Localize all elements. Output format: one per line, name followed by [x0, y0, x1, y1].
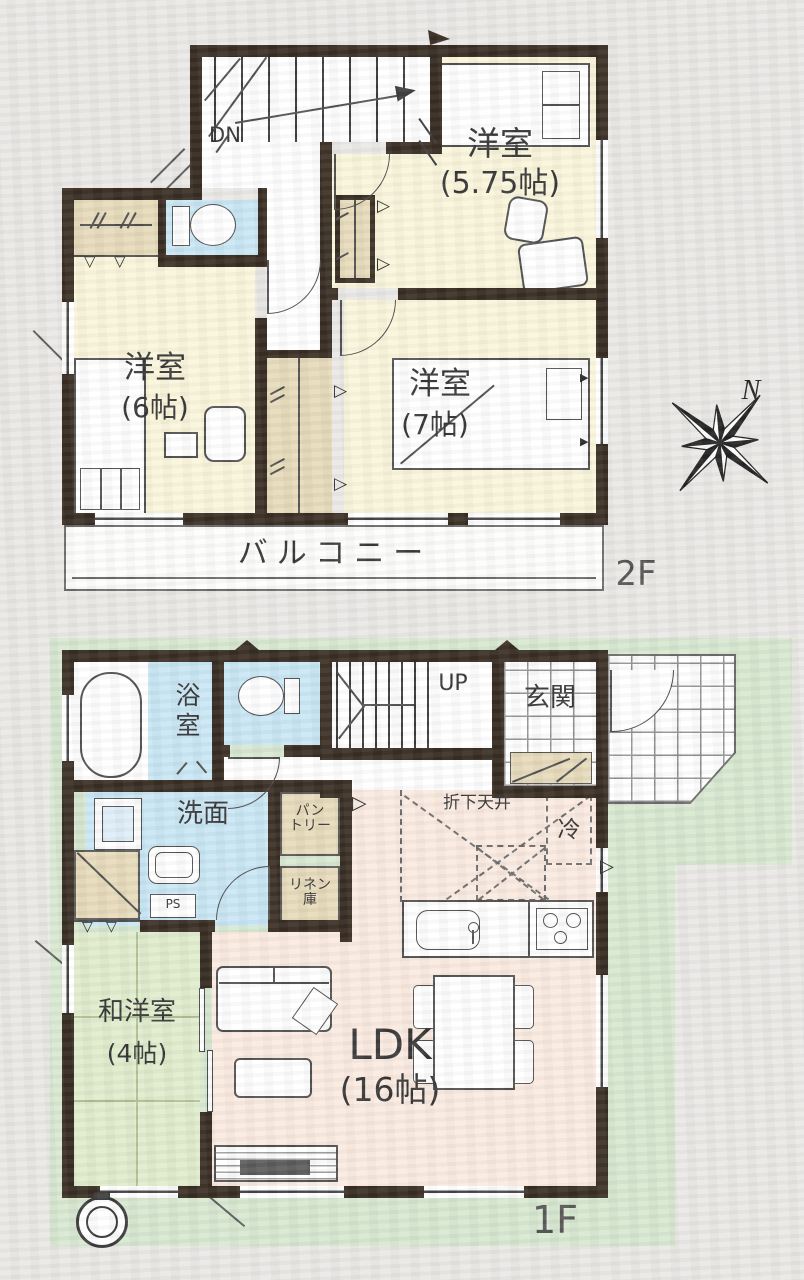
f2-room6-door-leaf	[267, 260, 269, 314]
wall-segment	[492, 662, 504, 798]
wall-segment	[320, 662, 332, 757]
window	[62, 302, 74, 374]
chair	[502, 195, 549, 245]
wall-segment	[320, 786, 346, 798]
wall-segment	[320, 748, 492, 760]
f2-balcony-label: バルコニー	[62, 538, 608, 570]
f1-washitsu-name: 和洋室	[80, 998, 194, 1026]
wall-segment	[332, 288, 338, 300]
wall-segment	[320, 142, 332, 358]
f2-closet-575-line	[354, 200, 356, 278]
f2-closet-topleft	[74, 200, 158, 255]
f1-ldk-size: (16帖)	[318, 1072, 462, 1108]
f2-floor-label: 2F	[606, 556, 666, 593]
wall-segment	[62, 650, 608, 662]
toilet-bowl	[238, 676, 284, 716]
toilet-bowl	[190, 204, 236, 246]
f1-entrance-label: 玄関	[508, 684, 592, 712]
wall-segment	[268, 920, 352, 932]
bed-pillow	[546, 368, 582, 420]
f1-washitsu-size: (4帖)	[80, 1040, 194, 1067]
coffee-table	[234, 1058, 312, 1098]
wall-segment	[200, 1112, 212, 1186]
wall-segment	[596, 45, 608, 525]
desk	[517, 236, 589, 295]
tatami-line	[74, 1100, 200, 1102]
closet-opening-mark: ▷	[334, 476, 347, 493]
toilet-tank	[284, 678, 300, 714]
shoe-cabinet	[510, 752, 592, 784]
yard-drain-notch	[94, 1192, 110, 1200]
closet-opening-mark: ▷	[334, 383, 347, 400]
sliding-door-panel	[207, 1050, 213, 1112]
f1-pipe-space-label: PS	[150, 898, 196, 911]
f2-closet-center-line	[298, 358, 300, 513]
f2-room7-size: (7帖)	[375, 410, 495, 440]
f2-balcony-rail-line	[72, 577, 596, 579]
burner	[554, 931, 567, 944]
wall-segment	[190, 45, 202, 200]
wall-segment	[200, 926, 212, 988]
burner	[566, 913, 581, 928]
wall-segment	[224, 745, 230, 757]
wall-segment	[62, 188, 202, 200]
wall-segment	[158, 200, 166, 255]
f2-stairs-dn-label: DN	[200, 124, 250, 147]
bed-line	[100, 468, 102, 510]
bathtub	[80, 672, 142, 778]
window	[424, 1186, 524, 1198]
closet-opening-mark: ▷	[377, 256, 390, 273]
bed-line	[120, 468, 122, 510]
tv	[240, 1160, 310, 1175]
window	[62, 695, 74, 761]
folding-door-mark: ▽	[84, 254, 96, 269]
f2-room575-name: 洋室	[420, 126, 580, 162]
wall-segment	[340, 780, 352, 942]
window	[596, 975, 608, 1087]
window	[468, 513, 560, 525]
window	[95, 513, 183, 525]
vent-flag-mark	[428, 30, 450, 45]
yard-drain-inner	[86, 1206, 118, 1238]
f1-entrance-door-leaf	[610, 670, 612, 732]
compass-north-label: N	[736, 376, 766, 406]
f1-refrigerator-label: 冷	[546, 818, 592, 843]
f2-room6-size: (6帖)	[95, 393, 215, 423]
window	[596, 358, 608, 444]
f1-washroom-door-leaf	[268, 866, 270, 920]
window-tick	[33, 330, 64, 361]
burner	[543, 913, 558, 928]
f1-pantry-label: パン トリー	[282, 804, 338, 834]
window	[240, 1186, 344, 1198]
wall-segment	[258, 188, 267, 255]
f1-ldk-name: LDK	[330, 1022, 450, 1067]
compass-rose	[652, 375, 788, 511]
wall-segment	[255, 350, 332, 358]
side-table	[164, 432, 198, 458]
f1-stair-fork	[362, 704, 414, 706]
wall-segment	[158, 255, 267, 267]
faucet-stem	[472, 930, 474, 944]
sliding-door-panel	[199, 988, 205, 1052]
wall-segment	[190, 45, 608, 57]
f1-linen-label: リネン 庫	[282, 878, 338, 908]
f2-room575-size: (5.75帖)	[405, 168, 595, 200]
window	[596, 140, 608, 238]
f1-washroom-label: 洗面	[148, 800, 258, 828]
wall-segment	[596, 650, 608, 1198]
wall-arrow-mark: ▷	[600, 858, 614, 876]
bed-pillow	[80, 468, 140, 510]
f2-closet-pipe	[80, 224, 152, 226]
washing-machine-inner	[102, 806, 134, 842]
sofa-back-line	[219, 982, 329, 984]
folding-door-mark: ▽	[106, 920, 117, 934]
wall-segment	[398, 288, 596, 300]
bed-line	[542, 104, 580, 106]
f2-room6-name: 洋室	[95, 352, 215, 385]
sofa-cushion-line	[273, 967, 275, 982]
wash-basin-inner	[155, 852, 193, 878]
folding-door-mark: ▽	[114, 254, 126, 269]
wall-segment	[62, 780, 352, 792]
floor-plan-sheet: DN ▽ ▽ ▷ ▷ ▷ ▷	[0, 0, 804, 1280]
wall-segment	[284, 745, 320, 757]
f2-room575-door-leaf	[334, 154, 336, 210]
folding-door-mark: ▽	[82, 920, 93, 934]
f1-toilet-door-leaf	[228, 757, 280, 759]
f1-floor-label: 1F	[520, 1200, 590, 1241]
wall-arrow-mark: ▶	[580, 372, 588, 383]
counter-divider	[528, 902, 530, 956]
wall-arrow-mark: ▶	[580, 436, 588, 447]
f2-hall-floor	[202, 142, 332, 188]
toilet-tank	[172, 206, 190, 246]
f2-room7-door-leaf	[340, 300, 342, 356]
window	[100, 1186, 178, 1198]
f1-lowered-ceiling-label: 折下天井	[414, 794, 540, 812]
f1-stairs-up-label: UP	[426, 672, 480, 696]
opening-mark: ▷	[352, 794, 367, 813]
closet-opening-mark: ▷	[377, 198, 390, 215]
lowered-ceiling-dash-line	[400, 790, 402, 902]
f1-bathroom-label: 浴室	[160, 682, 200, 742]
f2-room7-name: 洋室	[380, 368, 500, 401]
wall-segment	[255, 318, 267, 513]
window	[348, 513, 448, 525]
window	[62, 945, 74, 1013]
break-mark	[150, 148, 185, 183]
wall-segment	[212, 662, 224, 780]
